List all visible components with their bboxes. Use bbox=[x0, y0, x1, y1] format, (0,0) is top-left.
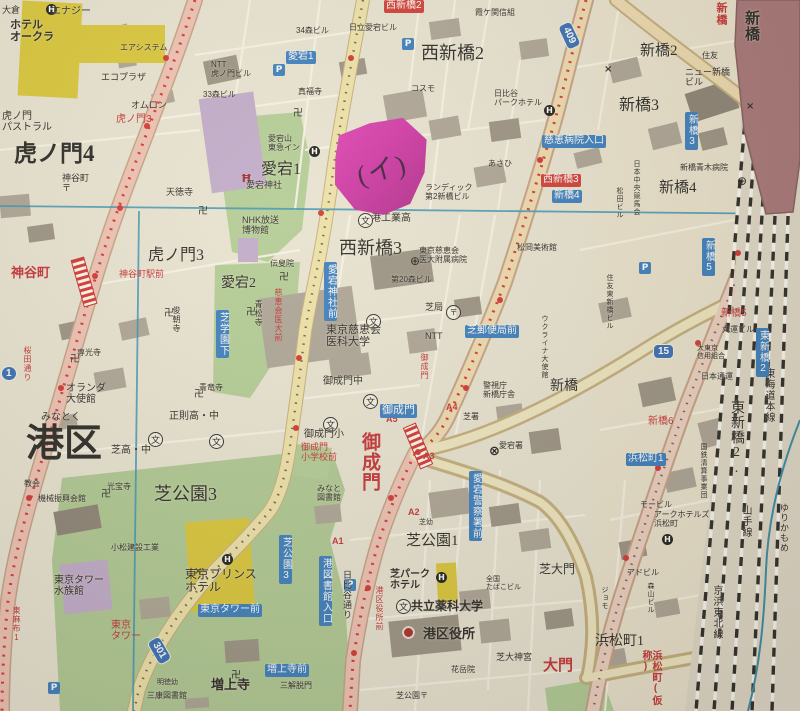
map-label: 西新橋3 bbox=[339, 239, 402, 258]
map-label: 共立薬科大学 bbox=[411, 600, 483, 613]
map-label: 三康図書館 bbox=[147, 692, 187, 701]
map-label: 日比谷 パークホテル bbox=[494, 90, 542, 107]
map-label: 新橋5 bbox=[721, 309, 747, 320]
map-label: 専光寺 bbox=[77, 349, 101, 358]
map-label: 愛宕1 bbox=[286, 51, 316, 64]
map-label: 愛宕警察署前 bbox=[469, 471, 482, 541]
map-label: 新橋 bbox=[550, 379, 578, 394]
map-label: 機械振興会館 bbox=[38, 495, 86, 504]
map-label: 愛宕署 bbox=[499, 442, 523, 451]
map-label: 新橋4 bbox=[552, 190, 582, 203]
map-label: ジョモ bbox=[601, 586, 608, 610]
parking-icon: P bbox=[639, 262, 651, 274]
map-label: 御成門 小学校前 bbox=[301, 443, 337, 462]
x-icon: × bbox=[604, 64, 612, 75]
map-label: アドビル bbox=[627, 569, 659, 578]
map-label: 34森ビル bbox=[296, 27, 329, 36]
map-label: 住友東新橋ビル bbox=[606, 274, 613, 330]
map-label: 御成門 bbox=[360, 432, 379, 492]
parking-icon: P bbox=[273, 64, 285, 76]
map-label: 御成門中 bbox=[323, 377, 363, 388]
map-label: 港区役所 bbox=[423, 627, 475, 641]
map-label: 御成門 bbox=[420, 353, 428, 380]
map-label: オムロン bbox=[131, 101, 167, 111]
hotel-icon: H bbox=[662, 534, 673, 545]
map-label: 正則高・中 bbox=[169, 412, 219, 423]
map-label: 小松建設工業 bbox=[111, 544, 159, 553]
map-label: 愛宕神社前 bbox=[324, 262, 337, 321]
map-label: 新橋4 bbox=[659, 180, 697, 196]
map-label: 浜松町(仮称) bbox=[640, 650, 660, 711]
map-label: 住友 bbox=[702, 52, 718, 61]
map-label: 天徳寺 bbox=[166, 188, 193, 198]
map-label: モービル bbox=[640, 501, 672, 510]
map-label: 芝公園3 bbox=[279, 535, 292, 584]
hotel-icon: H bbox=[222, 554, 233, 565]
map-label: 教会 bbox=[24, 480, 40, 489]
map-label: NTT bbox=[425, 332, 443, 342]
map-label: 新橋青木病院 bbox=[680, 164, 728, 173]
map-label: エアシステム bbox=[120, 44, 167, 53]
map-label: 芝パーク ホテル bbox=[390, 570, 430, 592]
map-label: 日本通運 bbox=[701, 373, 733, 382]
route-shield-15: 15 bbox=[653, 344, 674, 359]
school-icon: 文 bbox=[209, 434, 224, 449]
hotel-icon: H bbox=[309, 146, 320, 157]
map-label: 京浜東北線 bbox=[711, 585, 721, 640]
map-label: 新橋 bbox=[744, 10, 759, 42]
map-label: 花岳院 bbox=[451, 666, 475, 675]
map-label: A4 bbox=[446, 403, 458, 413]
temple-icon: 卍 bbox=[198, 202, 208, 217]
map-label: 新橋5 bbox=[702, 238, 715, 276]
map-label: 丸運ビル bbox=[722, 326, 754, 335]
map-label: 西新橋2 bbox=[421, 44, 484, 63]
map-label: 明徳幼 bbox=[157, 679, 178, 687]
map-label: 慈恵会医大前 bbox=[274, 288, 282, 342]
map-label: 桜田通り bbox=[23, 346, 31, 382]
map-label: 真福寺 bbox=[298, 88, 322, 97]
map-label: ランディック 第2新橋ビル bbox=[425, 184, 472, 201]
map-label: 大倉 bbox=[2, 6, 20, 16]
map-label: NTT 虎ノ門ビル bbox=[211, 61, 251, 78]
map-label: 新橋6 bbox=[648, 417, 674, 428]
map-label: ニュー新橋 ビル bbox=[685, 68, 730, 87]
map-label: 芝公園〒 bbox=[396, 692, 428, 701]
map-label: A2 bbox=[408, 508, 420, 518]
map-label: 新橋3 bbox=[685, 112, 698, 150]
map-label: 大東京 信用組合 bbox=[697, 345, 725, 360]
map-label: 西新橋2 bbox=[384, 0, 424, 13]
map-label: 愛宕山 東急イン bbox=[268, 135, 300, 152]
map-label: NHK放送 博物館 bbox=[242, 216, 279, 235]
map-label: ホテル オークラ bbox=[10, 20, 54, 44]
hotel-icon: H bbox=[544, 105, 555, 116]
map-label: 国鉄清算事業団 bbox=[700, 443, 707, 499]
parking-icon: P bbox=[402, 38, 414, 50]
map-label: 三解脱門 bbox=[280, 682, 312, 691]
map-label: 神谷町 〒 bbox=[62, 174, 89, 193]
school-icon: 文 bbox=[396, 599, 411, 614]
map-label: 光宝寺 bbox=[107, 483, 131, 492]
map-label: 芝郵便局前 bbox=[465, 325, 519, 338]
map-label: 新橋2 bbox=[640, 43, 678, 59]
map-label: 松岡美術館 bbox=[517, 244, 557, 253]
map-label: 俊朝寺 bbox=[172, 306, 180, 333]
map-label: 虎ノ門 パストラル bbox=[2, 112, 52, 134]
map-label: 港工業高 bbox=[371, 214, 411, 225]
map-label: 新橋 bbox=[715, 2, 726, 26]
map-label: あさひ bbox=[488, 160, 512, 169]
map-label: 浜松町1 bbox=[626, 453, 666, 466]
map-label: 芝署 bbox=[463, 413, 479, 422]
map-label: 日比谷通り bbox=[342, 570, 351, 620]
map-label: 御成門 bbox=[380, 404, 417, 418]
map-label: 御成門小 bbox=[304, 430, 344, 441]
map-label: 東京慈恵会 医科大学 bbox=[326, 325, 381, 349]
map-label: 東麻布1 bbox=[12, 606, 20, 643]
map-label: 虎ノ門3 bbox=[116, 115, 152, 126]
map-label: 芝学園下 bbox=[216, 310, 229, 358]
map-label: 東京 タワー bbox=[111, 621, 141, 643]
map-label: A3 bbox=[423, 452, 435, 462]
map-label: オランダ 大使館 bbox=[66, 384, 106, 406]
ward-icon bbox=[402, 626, 415, 639]
map-label: 神谷町駅前 bbox=[119, 270, 164, 280]
map-label: コスモ bbox=[411, 85, 435, 94]
parking-icon: P bbox=[48, 682, 60, 694]
route-shield-1: 1 bbox=[1, 366, 17, 381]
map-label: 警視庁 新橋庁舎 bbox=[483, 382, 515, 399]
map-label: 松田ビル bbox=[616, 187, 623, 219]
map-photo: (イ) 虎ノ門4虎ノ門3愛宕1愛宕2西新橋2西新橋3みなとく港区新橋2新橋3新橋… bbox=[0, 0, 800, 711]
map-label: 愛宕神社 bbox=[246, 181, 282, 191]
map-label: 第20森ビル bbox=[391, 276, 432, 285]
map-label: 東京プリンス ホテル bbox=[185, 568, 257, 594]
map-label: 東京タワー前 bbox=[198, 604, 262, 617]
map-label: 芝大神宮 bbox=[496, 653, 532, 663]
map-label: 全国 たばこビル bbox=[486, 576, 521, 591]
temple-icon: 卍 bbox=[293, 104, 303, 119]
map-label: 芝公園3 bbox=[154, 485, 217, 504]
map-label: 東京慈恵会 医大附属病院 bbox=[419, 247, 467, 264]
map-label: 芝高・中 bbox=[111, 446, 151, 457]
map-label: 日本中央競馬会 bbox=[633, 160, 640, 216]
map-label: 青竜寺 bbox=[199, 384, 223, 393]
map-label: 森山ビル bbox=[647, 582, 654, 614]
map-label: 青松寺 bbox=[254, 300, 262, 327]
map-label: 愛宕1 bbox=[261, 161, 301, 178]
map-label: 虎ノ門3 bbox=[148, 247, 204, 264]
map-label: 東新橋2. bbox=[729, 400, 743, 477]
map-label: 新橋3 bbox=[619, 97, 659, 114]
map-label: 慈恵病院入口 bbox=[542, 135, 606, 148]
school-icon: 文 bbox=[363, 394, 378, 409]
map-label: 芝大門 bbox=[539, 563, 575, 576]
map-label: 33森ビル bbox=[203, 91, 236, 100]
map-label: 芝公園1 bbox=[406, 533, 459, 549]
map-label: エコプラザ bbox=[101, 73, 146, 83]
map-label: ゆりかもめ bbox=[779, 503, 788, 553]
hotel-icon: H bbox=[436, 572, 447, 583]
x-icon: × bbox=[746, 101, 754, 112]
map-label: 大門 bbox=[543, 658, 573, 674]
map-label: 西新橋3 bbox=[541, 174, 581, 187]
hospital-icon: ⊕ bbox=[737, 174, 747, 188]
map-label: A1 bbox=[332, 537, 344, 547]
map-label: 増上寺 bbox=[211, 678, 250, 692]
map-label: みなと 図書館 bbox=[317, 485, 341, 502]
map-label: 港図書館入口 bbox=[319, 556, 332, 626]
temple-icon: 卍 bbox=[279, 268, 289, 283]
map-label: エナジー bbox=[51, 7, 91, 18]
map-label: アークホテルズ 浜松町 bbox=[654, 511, 710, 528]
post-icon: 〒 bbox=[446, 305, 461, 320]
map-label: 虎ノ門4 bbox=[14, 142, 95, 167]
map-label: 芝幼 bbox=[419, 519, 433, 527]
map-label: 東新橋2 bbox=[756, 328, 769, 377]
map-label: 増上寺前 bbox=[265, 664, 309, 677]
map-label: 山手線 bbox=[740, 505, 750, 538]
map-label: 神谷町 bbox=[11, 266, 50, 280]
map-label: ウクライナ大使館 bbox=[541, 315, 548, 379]
map-label: 伝叟院 bbox=[270, 260, 294, 269]
map-label: 浜松町1 bbox=[595, 634, 644, 649]
map-label: 港区 bbox=[26, 424, 102, 465]
sticky-note-text: (イ) bbox=[351, 142, 410, 193]
map-label: 東京タワー 水族館 bbox=[54, 576, 104, 598]
map-label: 港区役所前 bbox=[375, 586, 383, 631]
map-label: 芝局 bbox=[425, 303, 443, 313]
map-label: 日立愛宕ビル bbox=[349, 24, 397, 33]
map-label: 霞ケ関信組 bbox=[475, 9, 515, 18]
map-label: 愛宕2 bbox=[221, 276, 256, 291]
